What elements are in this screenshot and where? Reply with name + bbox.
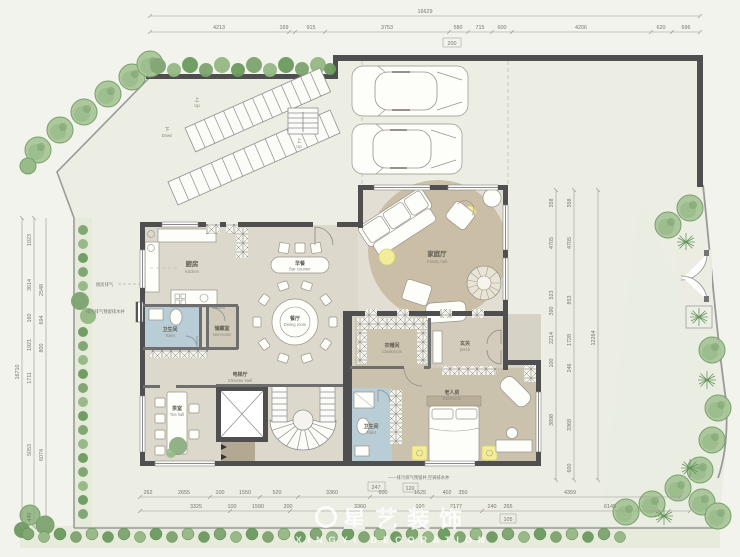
- label-cloak-en: Cloakroom: [382, 349, 403, 354]
- dim: 262: [144, 490, 153, 496]
- site-plan-svg: 16629 4213 169 915 3753 580 715 600 4206…: [0, 0, 740, 557]
- dim: 1550: [239, 490, 251, 496]
- label-stair-up-en: Up: [194, 103, 200, 108]
- label-stair-up-cn: 上: [195, 96, 200, 102]
- note-kitchen-vent: 厨房排气: [96, 281, 114, 288]
- dim: 800: [39, 344, 45, 353]
- dim-boxed: 247: [372, 485, 381, 491]
- dimensions-top: 16629 4213 169 915 3753 580 715 600 4206…: [148, 9, 702, 47]
- dim: 2548: [39, 284, 45, 296]
- label-family-en: Family hall: [427, 259, 447, 264]
- label-elevator-hall-cn: 电梯厅: [232, 371, 247, 378]
- dim: 4359: [564, 490, 576, 496]
- dim: 1590: [252, 504, 264, 510]
- note-bottom-well: ——排污排气预留井,空调排水井: [388, 474, 450, 481]
- label-dining-cn: 餐厅: [289, 315, 300, 322]
- dim: 4705: [549, 237, 555, 249]
- dim: 390: [549, 307, 555, 316]
- dim: 100: [228, 504, 237, 510]
- dim: 2177: [450, 504, 462, 510]
- car-bottom: [352, 124, 462, 174]
- label-bedroom-cn: 老人房: [443, 389, 459, 396]
- dim: 2655: [178, 490, 190, 496]
- dim: 200: [284, 504, 293, 510]
- dim-boxed: 120: [406, 486, 415, 492]
- dim: 853: [567, 296, 573, 305]
- label-stair-up2-cn: 上: [297, 137, 302, 143]
- label-family-cn: 家庭厅: [427, 249, 447, 258]
- dim-top-sub: 200: [448, 41, 457, 47]
- dim: 169: [280, 25, 289, 31]
- dimensions-left: 16710 1023 3614 160 1921 1711 5053 440 2…: [15, 216, 46, 529]
- dim: 3614: [27, 279, 33, 291]
- dim-top-total: 16629: [418, 9, 433, 15]
- dim: 3368: [567, 419, 573, 431]
- label-stair-up2-en: Up: [296, 144, 302, 149]
- label-toilet2-cn: 卫生间: [363, 423, 378, 430]
- label-porch-en: porch: [460, 347, 471, 352]
- dim: 1921: [27, 339, 33, 351]
- small-stair: [288, 108, 318, 134]
- dim: 402: [443, 490, 452, 496]
- dim: 1023: [27, 234, 33, 246]
- dim: 440: [27, 513, 33, 522]
- label-cloak-cn: 衣帽间: [384, 342, 399, 349]
- label-toilet1-en: Toilet: [165, 333, 176, 338]
- label-toilet1-cn: 卫生间: [162, 326, 177, 333]
- dim: 100: [416, 504, 425, 510]
- label-kitchen-en: Kitchen: [185, 269, 200, 274]
- dim-boxed: 105: [504, 517, 513, 523]
- label-store-cn: 储藏室: [214, 325, 229, 332]
- dim: 3360: [354, 504, 366, 510]
- dim: 1625: [414, 490, 426, 496]
- dim: 600: [567, 464, 573, 473]
- dim: 358: [567, 199, 573, 208]
- car-top: [352, 66, 468, 116]
- dim: 160: [27, 314, 33, 323]
- dim: 100: [216, 490, 225, 496]
- dim: 600: [498, 25, 507, 31]
- dim: 6074: [39, 449, 45, 461]
- side-table-yellow: [379, 249, 395, 265]
- label-stair-down-en: Down: [162, 133, 173, 138]
- dim: 2214: [549, 332, 555, 344]
- dim: 265: [504, 504, 513, 510]
- dim-right-total: 12264: [591, 331, 597, 346]
- label-tea-cn: 茶室: [171, 405, 182, 412]
- dim: 240: [488, 504, 497, 510]
- dim: 3360: [326, 490, 338, 496]
- dim: 3753: [381, 25, 393, 31]
- dim: 580: [454, 25, 463, 31]
- label-toilet2-en: Toilet: [366, 430, 377, 435]
- dim: 3898: [549, 414, 555, 426]
- label-bedroom-en: Eld.Room: [443, 396, 462, 401]
- label-porch-cn: 玄关: [460, 340, 470, 347]
- label-elevator-hall-en: Elevator Hall: [228, 378, 252, 383]
- rattan-chair: [467, 266, 501, 300]
- dim: 4705: [567, 237, 573, 249]
- label-kitchen-cn: 厨房: [186, 259, 199, 268]
- dim: 6145: [604, 504, 616, 510]
- label-store-en: storeroom: [213, 332, 232, 337]
- note-left-well: 排污排气预留排水井: [86, 308, 125, 315]
- dim: 620: [657, 25, 666, 31]
- dim: 520: [273, 490, 282, 496]
- floor-plan-canvas: 16629 4213 169 915 3753 580 715 600 4206…: [0, 0, 740, 557]
- label-dining-en: Dining room: [284, 322, 307, 327]
- dim: 1728: [567, 334, 573, 346]
- label-tea-en: Tea hall: [170, 412, 185, 417]
- dim: 915: [307, 25, 316, 31]
- label-bar-en: Bar counter: [289, 267, 311, 272]
- dim: 696: [682, 25, 691, 31]
- dim: 5053: [27, 444, 33, 456]
- dim: 4213: [213, 25, 225, 31]
- dim-left-total: 16710: [15, 365, 21, 380]
- dim: 358: [549, 199, 555, 208]
- dim: 350: [459, 490, 468, 496]
- dim: 1711: [27, 372, 33, 384]
- dim: 4206: [575, 25, 587, 31]
- dim: 100: [549, 359, 555, 368]
- dim: 3325: [190, 504, 202, 510]
- dim: 246: [567, 364, 573, 373]
- dim: 694: [39, 316, 45, 325]
- dim: 715: [476, 25, 485, 31]
- dim: 523: [549, 291, 555, 300]
